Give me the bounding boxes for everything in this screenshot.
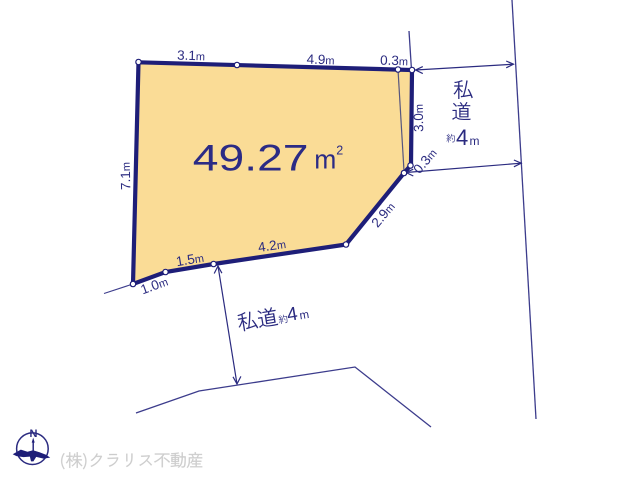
svg-text:0.3m: 0.3m [380, 53, 408, 69]
svg-text:4: 4 [285, 304, 299, 327]
svg-text:7.1m: 7.1m [118, 162, 134, 190]
svg-text:4.9m: 4.9m [306, 52, 334, 68]
svg-text:0.3m: 0.3m [410, 145, 439, 176]
svg-text:m: m [314, 144, 336, 174]
svg-text:49.27: 49.27 [193, 137, 309, 179]
svg-text:4: 4 [456, 125, 468, 150]
svg-text:2: 2 [336, 143, 343, 157]
svg-text:m: m [299, 309, 310, 322]
svg-text:3.0m: 3.0m [411, 104, 426, 132]
svg-text:N: N [30, 428, 38, 440]
svg-text:3.1m: 3.1m [177, 48, 205, 64]
svg-text:m: m [470, 134, 480, 148]
